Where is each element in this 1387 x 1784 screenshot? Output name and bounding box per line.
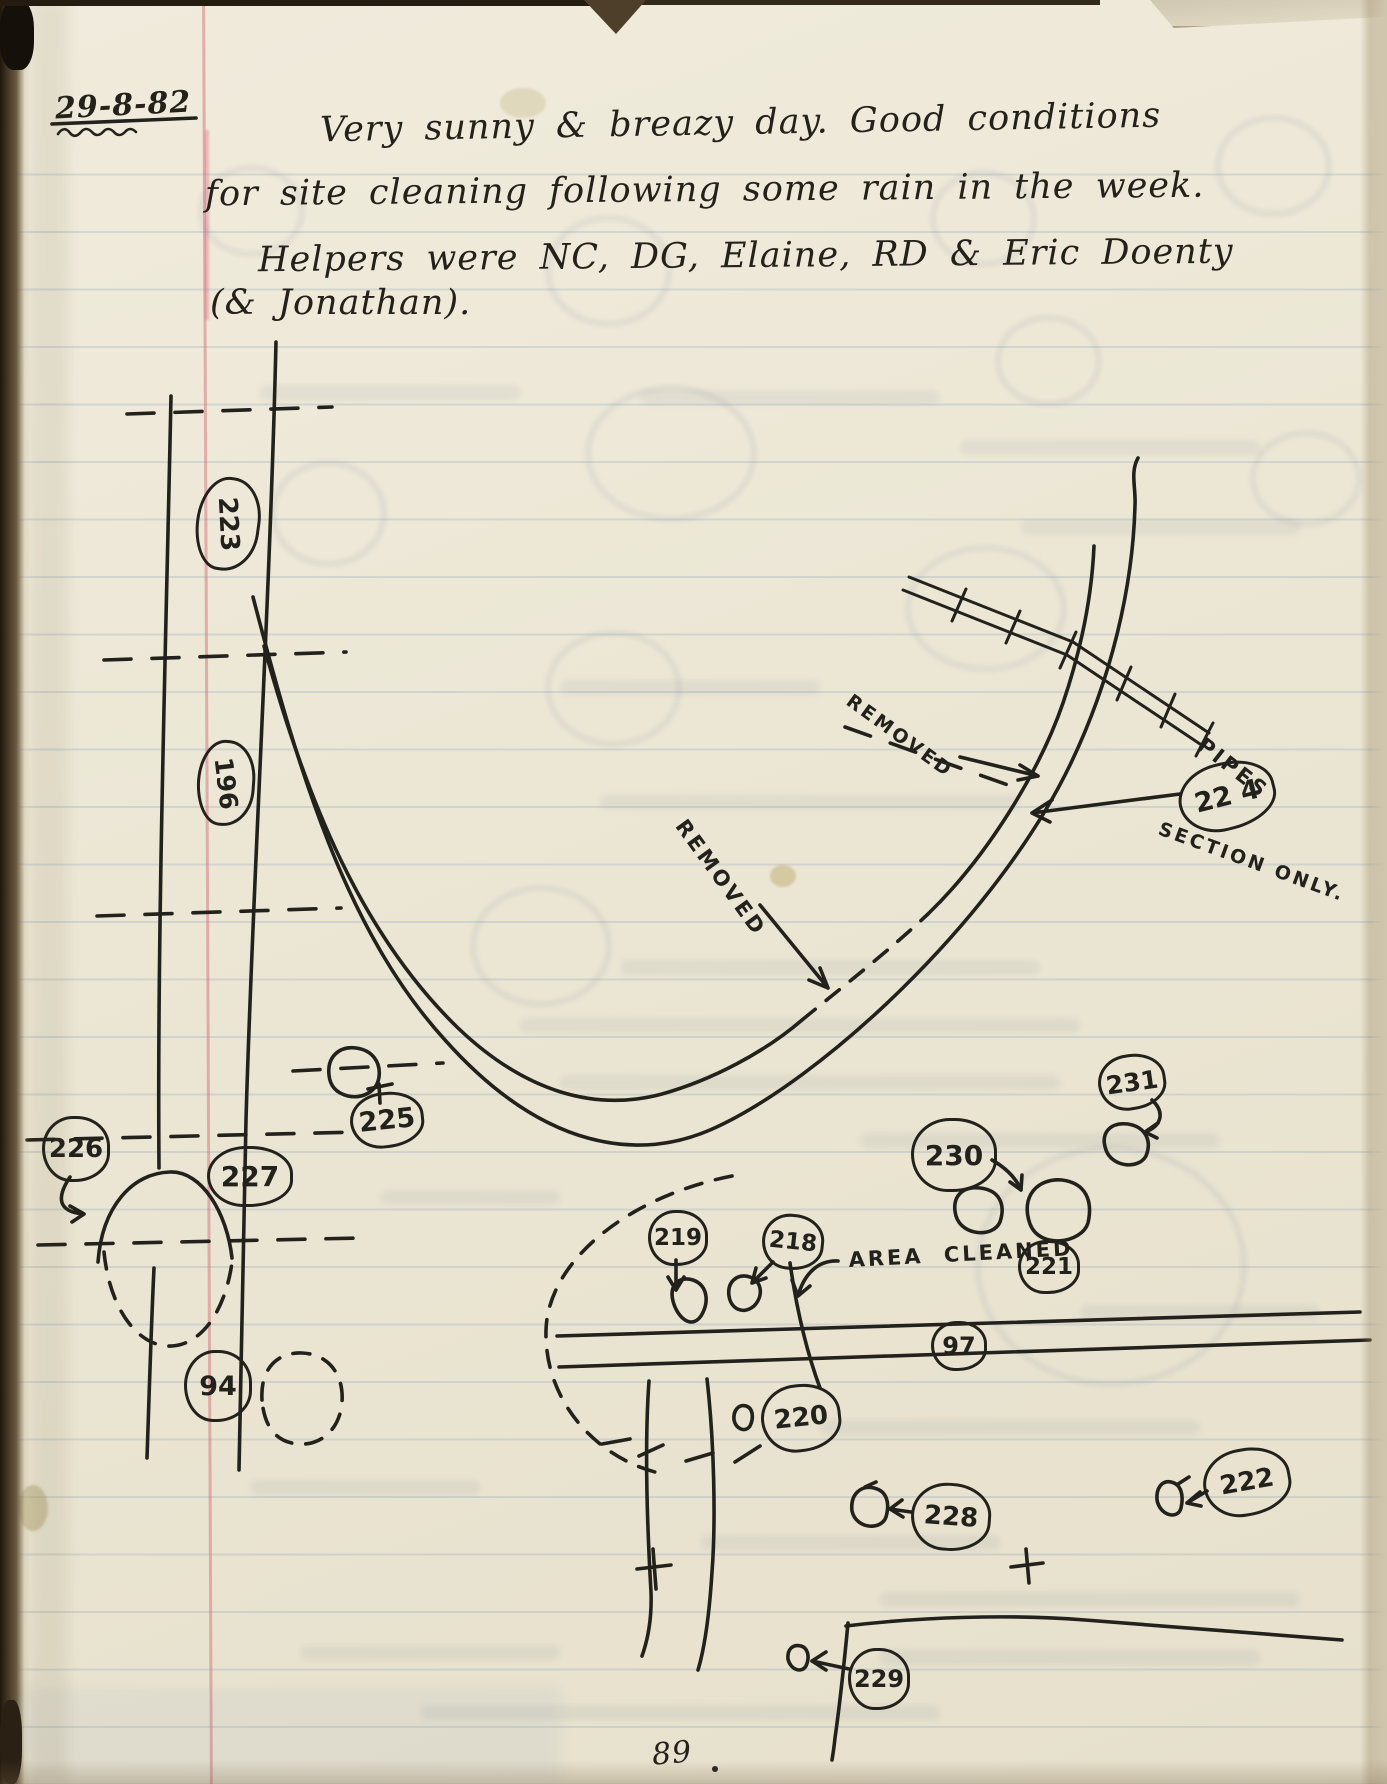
arrow-removed-upper: [960, 757, 1038, 780]
survey-cross: [637, 1549, 671, 1589]
feature-blob: [1027, 1180, 1089, 1241]
arrow-removed-lower: [760, 905, 828, 988]
feature-label-221: 221: [1018, 1240, 1080, 1294]
slot-right-line: [698, 1379, 714, 1670]
feature-label-219: 219: [648, 1210, 708, 1266]
feature-label-229: 229: [848, 1648, 910, 1710]
feature-blob: [1104, 1124, 1148, 1165]
feature-label-97: 97: [931, 1321, 987, 1371]
feature-blob: [788, 1646, 808, 1670]
slot-ticks: [602, 1439, 760, 1462]
pipe-ticks: [952, 589, 1213, 756]
area-cleaned-boundary: [546, 1176, 732, 1472]
page-edge-right: [1360, 0, 1387, 1784]
gutter-shadow: [30, 0, 68, 1784]
corner-feature-horizontal: [846, 1617, 1342, 1640]
date-squiggle: [58, 129, 136, 136]
notebook-page: 29-8-82 Very sunny & breazy day. Good co…: [0, 0, 1387, 1784]
section-line: [127, 407, 332, 414]
feature-blob: [955, 1188, 1002, 1233]
slot-left-line: [642, 1381, 651, 1656]
section-line: [293, 1063, 443, 1071]
binding-gutter: [0, 0, 30, 1784]
section-line: [97, 908, 341, 916]
feature-blob: [734, 1406, 752, 1430]
pipe-line: [1067, 642, 1209, 746]
trench-left-line: [159, 396, 171, 1168]
feature-blob: [1157, 1477, 1189, 1515]
arch-pit-dashed: [104, 1252, 233, 1346]
arrow-228: [890, 1500, 911, 1517]
feature-label-227: 227: [207, 1146, 293, 1207]
feature-blob: [852, 1482, 888, 1526]
section-line: [104, 652, 346, 660]
date: 29-8-82: [54, 84, 192, 126]
page-edge-top: [0, 0, 640, 6]
pipe-line: [903, 577, 1073, 655]
feature-label-94: 94: [184, 1350, 252, 1422]
section-line: [38, 1238, 360, 1245]
ditch-inner-curve-upper: [928, 546, 1094, 914]
survey-cross: [1011, 1549, 1043, 1583]
edge-blob: [0, 0, 34, 70]
page-edge-bottom: [0, 1760, 1387, 1784]
ditch-outer-curve: [253, 458, 1138, 1145]
notes-line-3: Helpers were NC, DG, Elaine, RD & Eric D…: [258, 232, 1234, 281]
page-corner-notch: [584, 0, 646, 34]
dashed-circle-94: [262, 1353, 342, 1444]
corner-feature-vertical: [832, 1623, 848, 1760]
notes-line-4: (& Jonathan).: [210, 283, 471, 323]
feature-label-230: 230: [911, 1118, 997, 1192]
feature-blob: [729, 1276, 761, 1310]
page-edge-top: [640, 0, 1100, 5]
trench-left-line-lower: [147, 1268, 154, 1458]
